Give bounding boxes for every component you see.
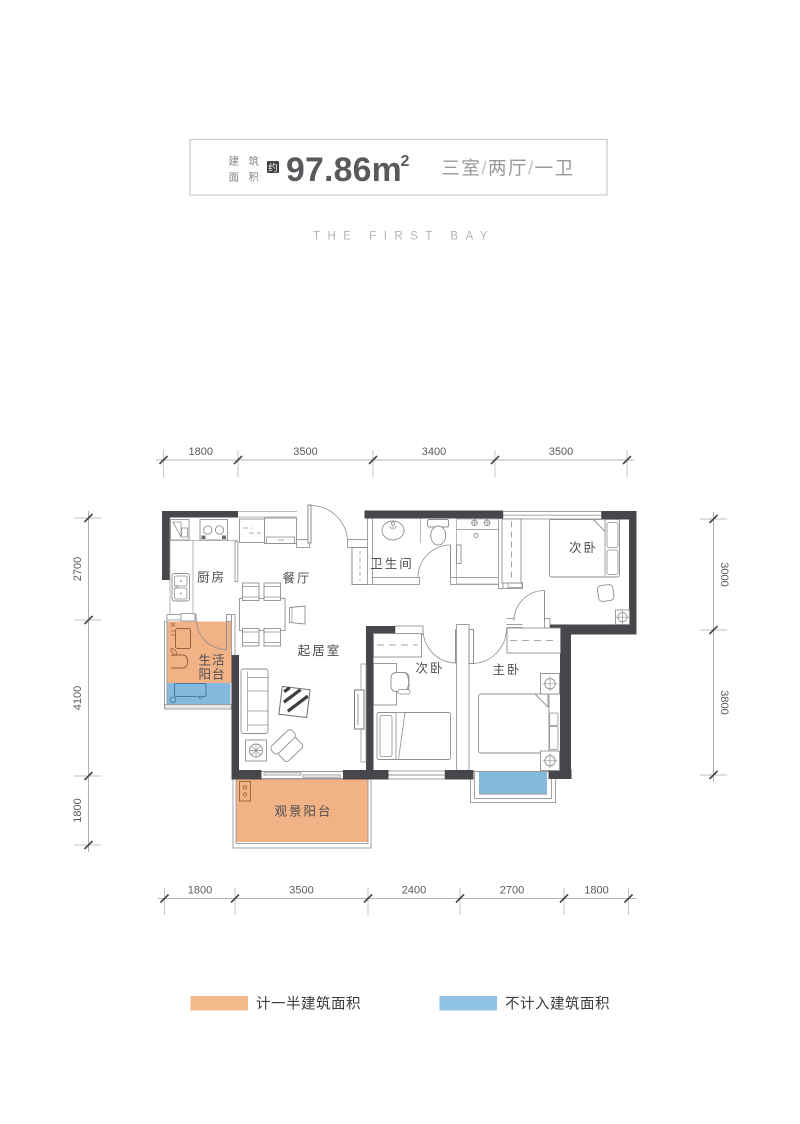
- svg-text:3500: 3500: [549, 446, 573, 458]
- svg-text:次卧: 次卧: [415, 662, 444, 676]
- svg-text:建筑: 建筑: [229, 155, 269, 168]
- svg-text:2700: 2700: [500, 885, 524, 897]
- svg-text:3400: 3400: [422, 446, 446, 458]
- svg-text:主卧: 主卧: [492, 663, 521, 677]
- svg-text:计一半建筑面积: 计一半建筑面积: [256, 996, 361, 1013]
- svg-text:2: 2: [401, 153, 410, 170]
- svg-text:厨房: 厨房: [197, 570, 226, 585]
- svg-text:1800: 1800: [189, 446, 213, 458]
- svg-text:生活: 生活: [198, 654, 225, 668]
- svg-text:4100: 4100: [72, 686, 84, 710]
- svg-text:1800: 1800: [72, 798, 84, 822]
- svg-text:2400: 2400: [402, 885, 426, 897]
- svg-text:2700: 2700: [72, 557, 84, 581]
- svg-text:1800: 1800: [188, 885, 212, 897]
- svg-text:3500: 3500: [289, 885, 313, 897]
- svg-text:阳台: 阳台: [198, 667, 225, 682]
- svg-text:餐厅: 餐厅: [282, 571, 311, 586]
- svg-text:3000: 3000: [718, 562, 730, 586]
- svg-text:次卧: 次卧: [569, 541, 598, 555]
- svg-text:3800: 3800: [718, 690, 730, 714]
- svg-text:不计入建筑面积: 不计入建筑面积: [505, 996, 610, 1013]
- svg-text:面积: 面积: [229, 172, 269, 184]
- svg-text:观景阳台: 观景阳台: [274, 804, 332, 819]
- svg-text:约: 约: [268, 162, 278, 174]
- svg-text:三室/两厅/一卫: 三室/两厅/一卫: [441, 158, 574, 179]
- svg-text:3500: 3500: [293, 446, 317, 458]
- svg-text:THE FIRST BAY: THE FIRST BAY: [313, 231, 495, 243]
- svg-text:97.86m: 97.86m: [286, 151, 402, 189]
- svg-text:起居室: 起居室: [298, 643, 342, 658]
- svg-text:1800: 1800: [584, 885, 608, 897]
- svg-text:卫生间: 卫生间: [370, 557, 414, 571]
